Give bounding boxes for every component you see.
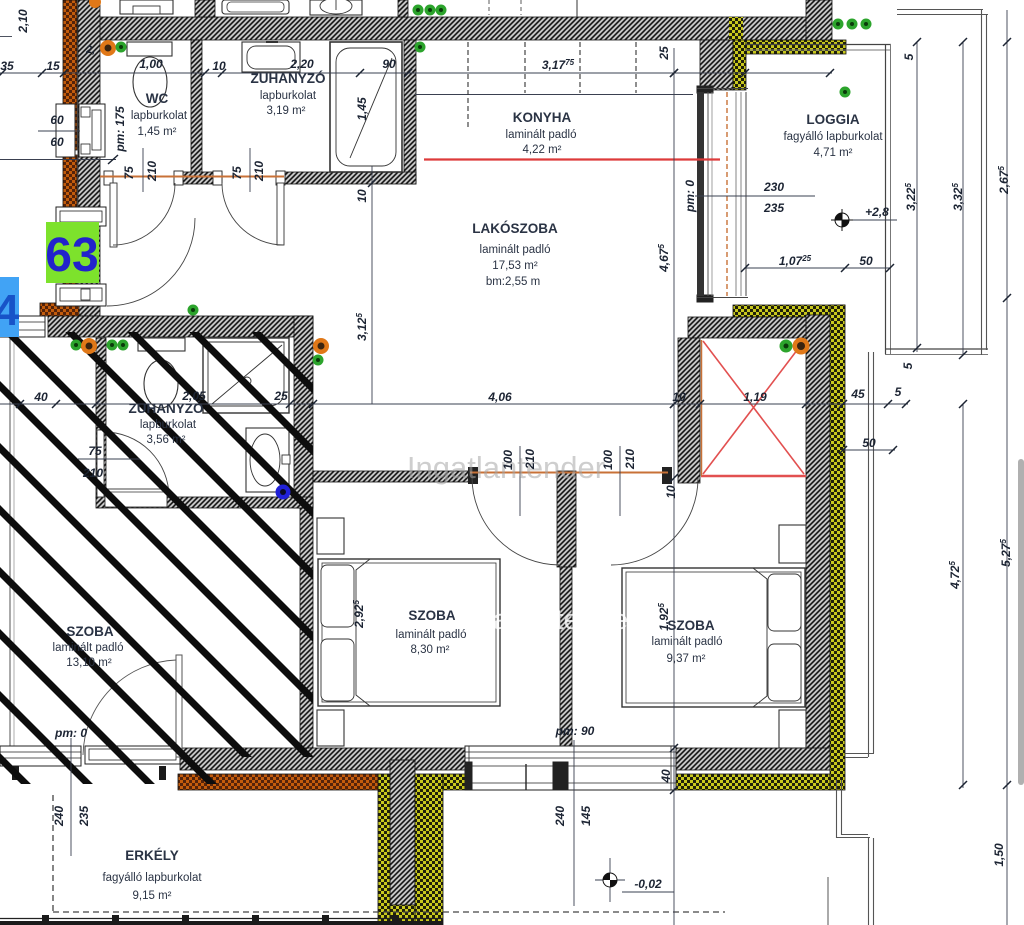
svg-text:75: 75 [122, 166, 136, 180]
svg-text:1,50: 1,50 [992, 843, 1006, 867]
svg-text:50: 50 [862, 436, 876, 450]
svg-text:bm:2,55 m: bm:2,55 m [486, 276, 540, 288]
svg-text:4,06: 4,06 [487, 390, 512, 404]
svg-text:laminált padló: laminált padló [652, 636, 723, 648]
svg-text:10: 10 [212, 59, 226, 73]
svg-text:100: 100 [601, 450, 615, 470]
svg-text:WC: WC [146, 91, 169, 106]
svg-text:210: 210 [623, 449, 637, 470]
svg-text:50: 50 [859, 254, 873, 268]
svg-text:ZUHANYZÓ: ZUHANYZÓ [129, 401, 204, 416]
svg-text:210: 210 [82, 466, 103, 480]
svg-text:ZUHANYZÓ: ZUHANYZÓ [251, 71, 326, 86]
svg-text:5: 5 [902, 53, 916, 60]
svg-text:9,15 m²: 9,15 m² [133, 890, 172, 902]
svg-text:75: 75 [230, 166, 244, 180]
svg-text:90: 90 [382, 57, 396, 71]
svg-text:10: 10 [355, 189, 369, 203]
svg-text:pm: 0: pm: 0 [54, 726, 87, 740]
svg-text:10: 10 [664, 485, 678, 499]
svg-text:LAKÓSZOBA: LAKÓSZOBA [472, 221, 558, 236]
svg-text:4,22 m²: 4,22 m² [523, 144, 562, 156]
svg-text:lapburkolat: lapburkolat [260, 90, 317, 102]
svg-text:17,53 m²: 17,53 m² [492, 260, 538, 272]
svg-text:40: 40 [659, 769, 673, 784]
svg-text:-0,02: -0,02 [634, 877, 662, 891]
svg-text:75: 75 [88, 444, 102, 458]
svg-text:3,56 m²: 3,56 m² [147, 434, 186, 446]
svg-text:2,10: 2,10 [16, 9, 30, 34]
svg-text:pm: 0: pm: 0 [683, 180, 697, 213]
svg-text:35: 35 [0, 59, 14, 73]
svg-text:laminált padló: laminált padló [506, 129, 577, 141]
svg-text:lapburkolat: lapburkolat [131, 110, 188, 122]
svg-text:145: 145 [579, 806, 593, 826]
svg-text:240: 240 [52, 806, 66, 827]
svg-text:1,00: 1,00 [139, 57, 163, 71]
svg-text:ERKÉLY: ERKÉLY [125, 848, 179, 863]
svg-text:5: 5 [895, 385, 902, 399]
svg-text:fagyálló lapburkolat: fagyálló lapburkolat [783, 131, 883, 143]
svg-text:40: 40 [33, 390, 48, 404]
svg-text:pm: 175: pm: 175 [113, 106, 127, 153]
svg-text:9,37 m²: 9,37 m² [667, 653, 706, 665]
svg-text:25: 25 [273, 389, 288, 403]
svg-text:3,19 m²: 3,19 m² [267, 105, 306, 117]
svg-text:230: 230 [763, 180, 784, 194]
svg-text:1,19: 1,19 [743, 390, 767, 404]
svg-text:5: 5 [901, 362, 915, 369]
svg-text:laminált padló: laminált padló [53, 642, 124, 654]
svg-text:15: 15 [46, 59, 60, 73]
svg-text:63: 63 [45, 229, 98, 282]
svg-text:60: 60 [50, 113, 64, 127]
svg-text:45: 45 [850, 387, 865, 401]
svg-text:2,: 2, [85, 44, 95, 56]
svg-text:4: 4 [0, 286, 20, 335]
svg-text:60: 60 [50, 135, 64, 149]
svg-text:210: 210 [252, 161, 266, 182]
svg-text:fagyálló lapburkolat: fagyálló lapburkolat [102, 872, 202, 884]
svg-text:1,45: 1,45 [355, 97, 369, 121]
svg-text:4,71 m²: 4,71 m² [814, 147, 853, 159]
svg-text:SZOBA: SZOBA [667, 618, 715, 633]
svg-text:240: 240 [553, 806, 567, 827]
svg-text:SZOBA: SZOBA [408, 608, 456, 623]
svg-text:Ingatlantender: Ingatlantender [452, 604, 638, 636]
svg-text:2,20: 2,20 [289, 57, 314, 71]
svg-text:100: 100 [501, 450, 515, 470]
svg-text:1,45 m²: 1,45 m² [138, 126, 177, 138]
svg-text:25: 25 [657, 46, 671, 61]
svg-text:lapburkolat: lapburkolat [140, 419, 197, 431]
svg-text:235: 235 [763, 201, 784, 215]
svg-text:LOGGIA: LOGGIA [806, 112, 859, 127]
svg-text:KONYHA: KONYHA [513, 110, 572, 125]
svg-text:+2,8: +2,8 [865, 205, 889, 219]
svg-text:235: 235 [77, 806, 91, 827]
svg-text:210: 210 [523, 449, 537, 470]
svg-text:pm: 90: pm: 90 [555, 724, 595, 738]
svg-text:8,30 m²: 8,30 m² [411, 644, 450, 656]
svg-text:10: 10 [672, 390, 686, 404]
svg-text:13,10 m²: 13,10 m² [66, 657, 112, 669]
svg-text:laminált padló: laminált padló [480, 244, 551, 256]
svg-text:210: 210 [145, 161, 159, 182]
svg-text:SZOBA: SZOBA [66, 624, 114, 639]
